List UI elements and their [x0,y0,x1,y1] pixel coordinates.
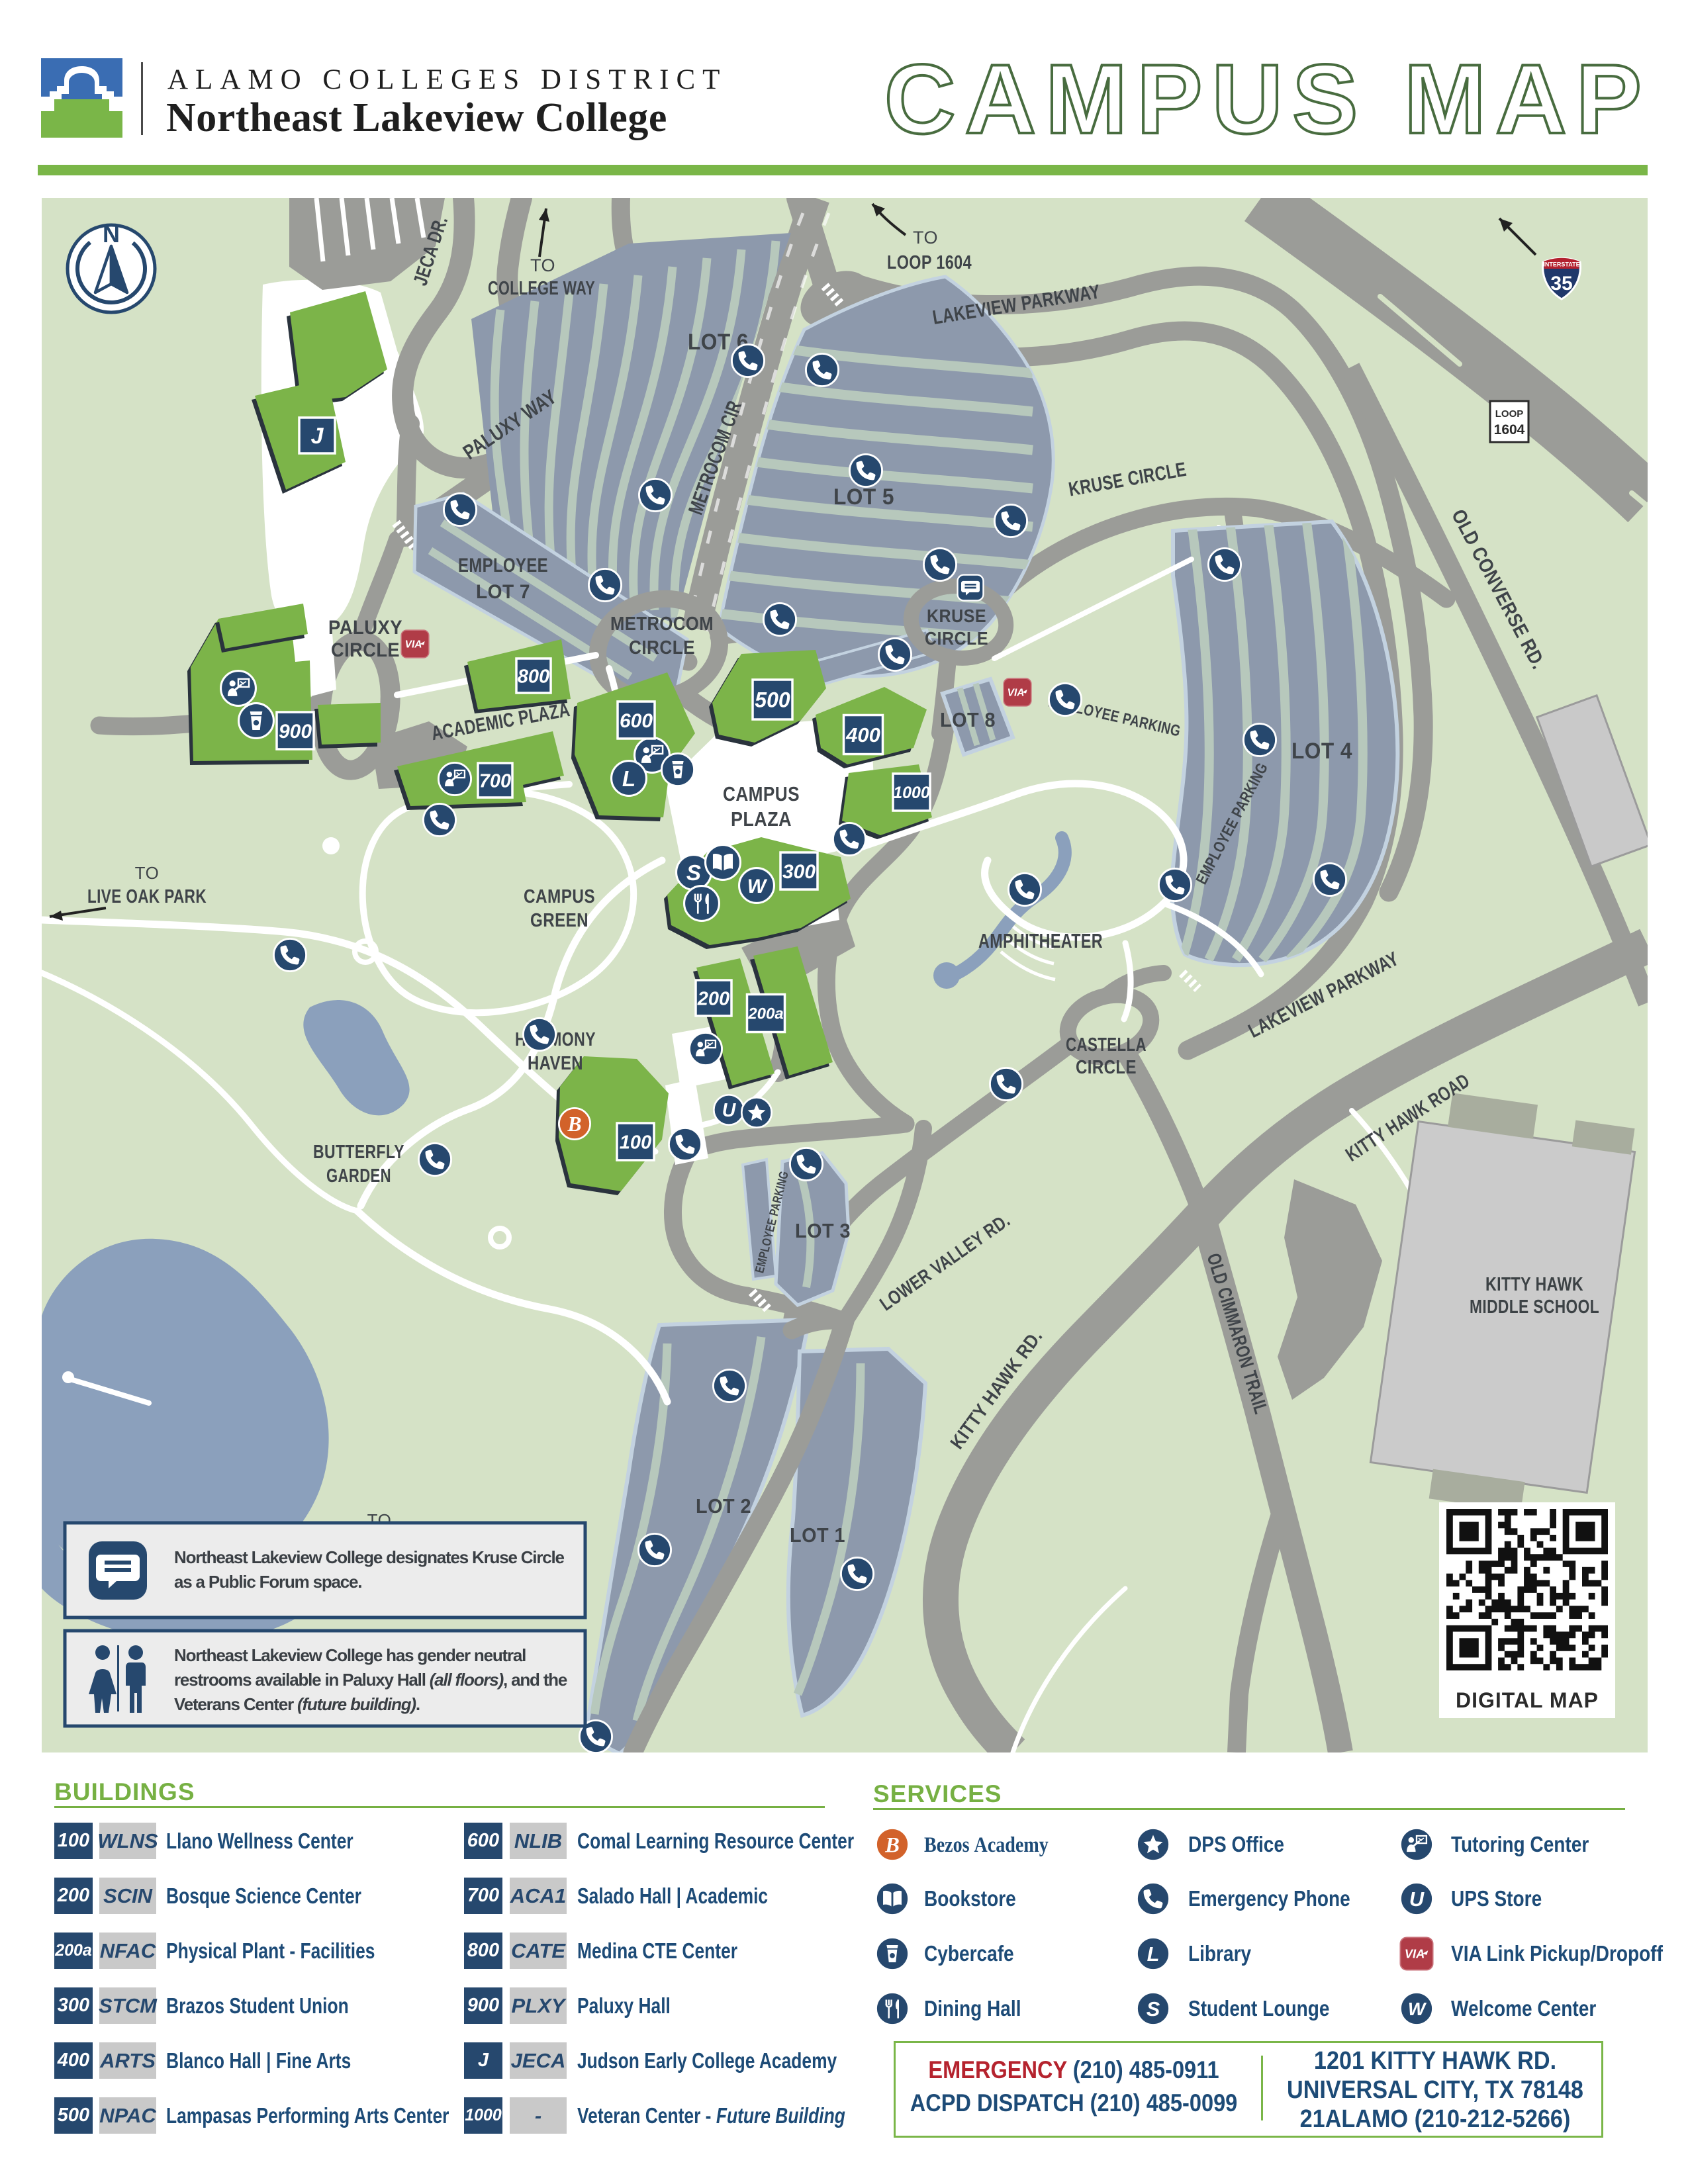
svg-text:EMPLOYEE: EMPLOYEE [458,555,548,576]
svg-text:as a Public Forum space.: as a Public Forum space. [174,1572,361,1592]
svg-text:300: 300 [782,861,816,883]
svg-text:TO: TO [530,255,555,275]
svg-text:N: N [103,220,120,248]
svg-text:LOT 4: LOT 4 [1291,739,1352,764]
svg-text:LOT 8: LOT 8 [940,708,996,731]
svg-text:LIVE OAK PARK: LIVE OAK PARK [87,886,207,907]
svg-text:400: 400 [845,723,880,747]
svg-text:1604: 1604 [1494,422,1525,437]
svg-text:MIDDLE SCHOOL: MIDDLE SCHOOL [1470,1297,1599,1318]
svg-text:LOOP: LOOP [1495,408,1524,420]
svg-text:PALUXY: PALUXY [328,617,402,639]
svg-text:KITTY HAWK: KITTY HAWK [1485,1274,1583,1295]
svg-text:CIRCLE: CIRCLE [331,639,400,661]
svg-text:35: 35 [1550,273,1572,295]
svg-text:PLAZA: PLAZA [731,807,792,831]
svg-text:LOOP 1604: LOOP 1604 [887,252,972,273]
svg-text:KRUSE: KRUSE [927,606,986,626]
svg-text:LOT 5: LOT 5 [833,484,894,510]
svg-text:CAMPUS: CAMPUS [723,782,800,805]
svg-text:COLLEGE WAY: COLLEGE WAY [488,278,595,299]
svg-text:700: 700 [479,770,511,792]
svg-text:200a: 200a [747,1005,783,1023]
svg-text:600: 600 [620,710,653,732]
svg-text:AMPHITHEATER: AMPHITHEATER [978,929,1103,952]
svg-text:CIRCLE: CIRCLE [629,637,695,659]
svg-text:CIRCLE: CIRCLE [1076,1057,1137,1078]
svg-text:900: 900 [279,721,312,743]
svg-text:Northeast Lakeview College des: Northeast Lakeview College designates Kr… [174,1547,565,1567]
svg-text:100: 100 [620,1132,651,1153]
svg-text:LOT 2: LOT 2 [696,1494,751,1518]
svg-text:LOT 3: LOT 3 [795,1219,851,1242]
svg-text:INTERSTATE: INTERSTATE [1543,261,1579,268]
svg-text:J: J [311,424,324,449]
svg-text:METROCOM: METROCOM [610,614,714,635]
svg-text:Veterans Center (future buildi: Veterans Center (future building). [174,1694,420,1714]
svg-text:CIRCLE: CIRCLE [925,628,988,649]
svg-text:200: 200 [697,988,729,1009]
svg-text:HAVEN: HAVEN [528,1053,583,1074]
svg-text:Northeast Lakeview College has: Northeast Lakeview College has gender ne… [174,1645,526,1665]
svg-text:GREEN: GREEN [530,910,588,931]
svg-text:TO: TO [913,228,938,248]
svg-text:GARDEN: GARDEN [326,1165,391,1187]
svg-text:BUTTERFLY: BUTTERFLY [313,1142,404,1163]
svg-text:LOT 7: LOT 7 [476,581,530,603]
svg-text:CASTELLA: CASTELLA [1066,1034,1147,1056]
svg-text:DIGITAL MAP: DIGITAL MAP [1456,1688,1599,1712]
svg-text:restrooms available in Paluxy: restrooms available in Paluxy Hall (all … [174,1670,567,1690]
svg-text:CAMPUS: CAMPUS [524,886,595,907]
svg-text:800: 800 [518,666,549,687]
svg-text:TO: TO [135,863,160,883]
svg-text:1000: 1000 [893,784,930,802]
svg-text:LOT 1: LOT 1 [790,1524,845,1547]
svg-text:500: 500 [755,688,790,712]
